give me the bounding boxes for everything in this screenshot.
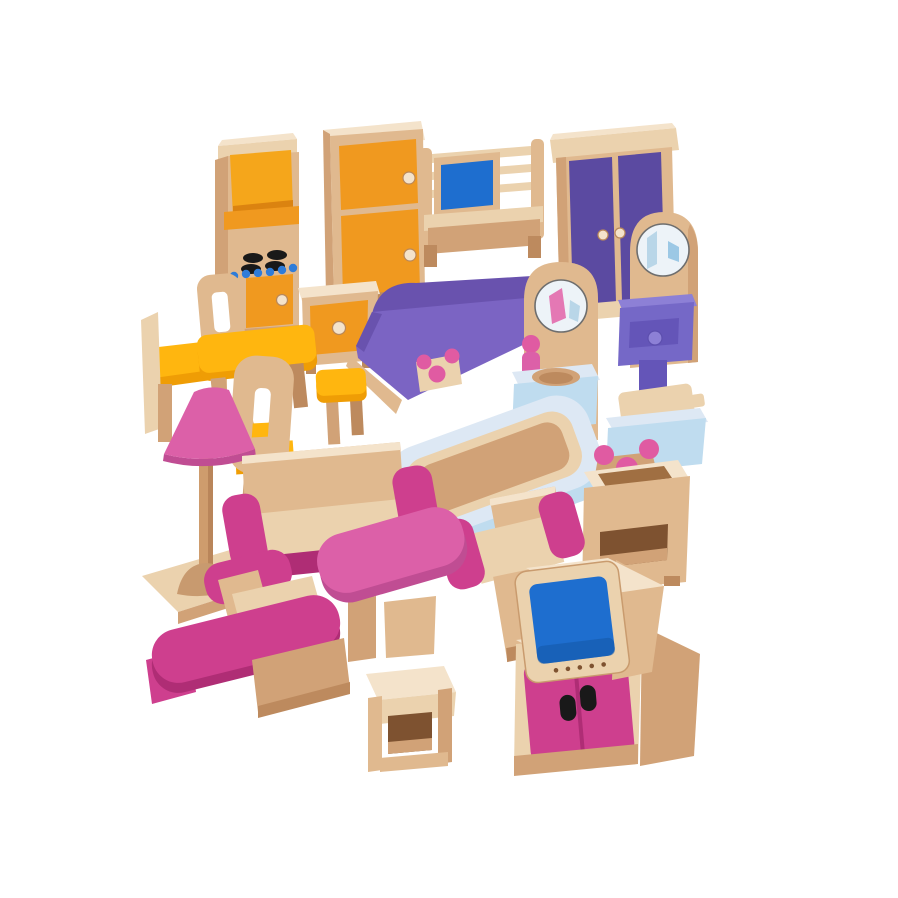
side-stool (366, 666, 456, 772)
tap-knob (594, 445, 614, 465)
furniture-scene (0, 0, 898, 898)
tap-knob (639, 439, 659, 459)
dressing-mirror (637, 224, 689, 276)
dollhouse-furniture-photo (0, 0, 898, 898)
fridge (323, 121, 425, 306)
cot (419, 139, 544, 267)
oven-knob (277, 295, 288, 306)
doll-figure (522, 335, 540, 353)
stool-yellow (315, 368, 369, 446)
tv (514, 558, 664, 684)
cot-panel (441, 160, 493, 210)
